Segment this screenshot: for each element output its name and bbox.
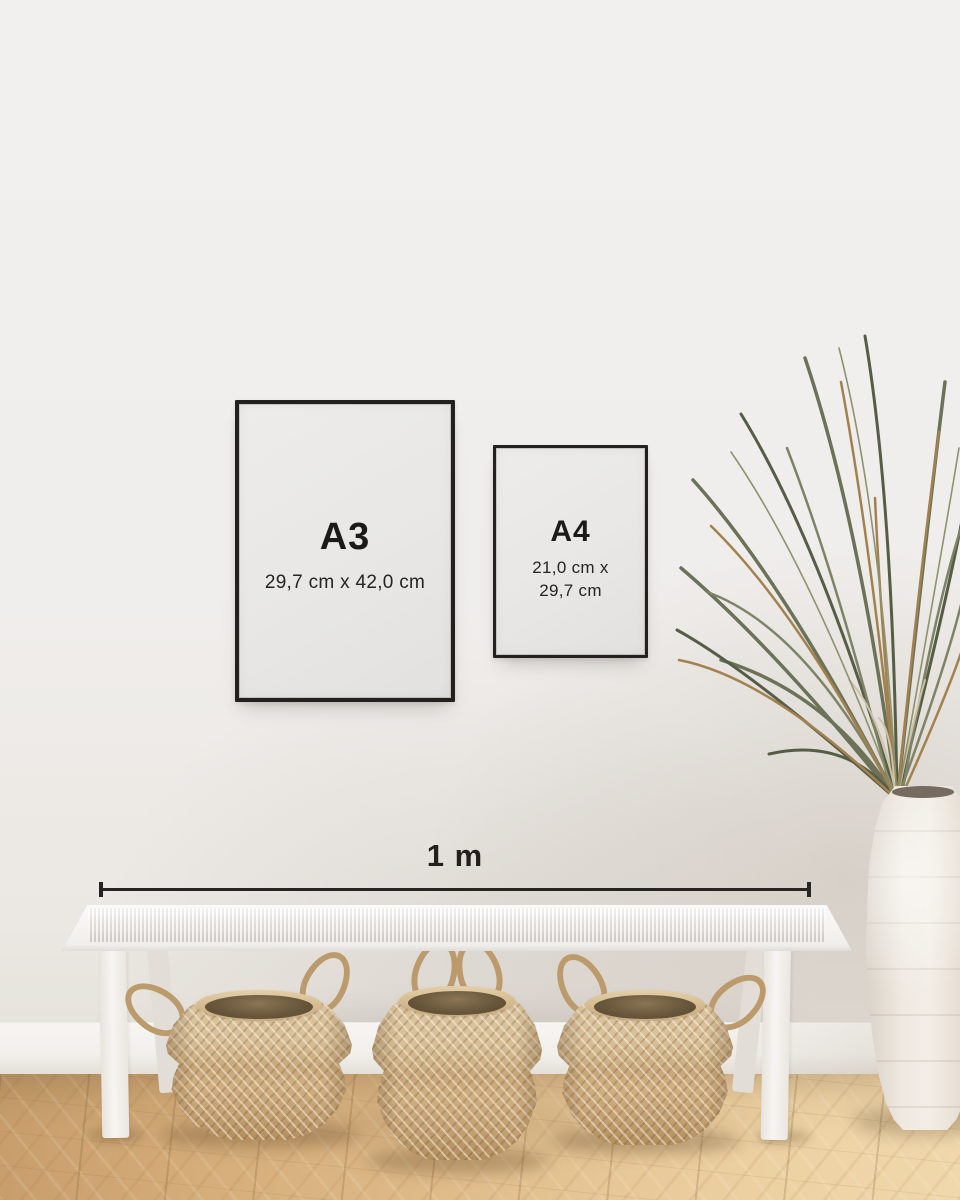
scale-ruler-label: 1 m [99, 838, 811, 874]
bench-leg-front-left [99, 948, 129, 1138]
frame-a4-dimensions: 21,0 cm x 29,7 cm [532, 557, 608, 603]
frame-a3-size-label: A3 [320, 518, 371, 556]
basket-2-body [372, 992, 542, 1160]
frame-a4: A4 21,0 cm x 29,7 cm [493, 445, 648, 658]
basket-3-opening [594, 995, 696, 1019]
ceramic-vase [866, 786, 960, 1130]
frame-a3: A3 29,7 cm x 42,0 cm [235, 400, 455, 702]
basket-2-opening [408, 991, 507, 1015]
bench-leg-front-right [761, 948, 791, 1140]
scale-ruler-tick-right [807, 882, 811, 897]
frame-a4-dimensions-line1: 21,0 cm x [532, 557, 608, 580]
basket-2 [372, 992, 542, 1160]
bench-woven-top [88, 908, 826, 942]
basket-1 [166, 996, 352, 1140]
vase-mouth-opening [892, 786, 955, 798]
scale-ruler-line [101, 888, 809, 891]
frame-a4-dimensions-line2: 29,7 cm [532, 580, 608, 603]
dried-palm-plant [635, 330, 960, 830]
scale-ruler-tick-left [99, 882, 103, 897]
frame-a4-size-label: A4 [550, 517, 590, 547]
basket-3 [557, 996, 733, 1145]
size-guide-mockup-scene: A3 29,7 cm x 42,0 cm A4 21,0 cm x 29,7 c… [0, 0, 960, 1200]
bench-seat [62, 905, 852, 951]
frame-a3-dimensions: 29,7 cm x 42,0 cm [265, 570, 425, 596]
scale-ruler: 1 m [99, 838, 811, 900]
basket-1-opening [205, 995, 313, 1019]
